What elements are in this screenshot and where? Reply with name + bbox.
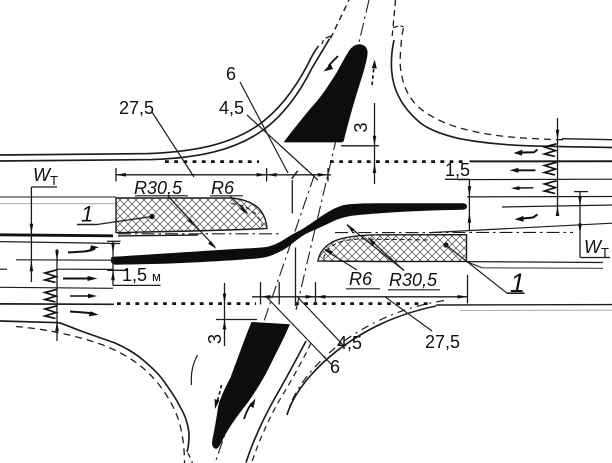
svg-text:R30,5: R30,5: [134, 178, 183, 198]
svg-text:R6: R6: [349, 269, 373, 289]
svg-text:1,5: 1,5: [445, 160, 470, 180]
svg-text:6: 6: [226, 64, 236, 84]
svg-text:R6: R6: [211, 178, 235, 198]
svg-text:R30,5: R30,5: [389, 270, 438, 290]
svg-text:27,5: 27,5: [425, 332, 460, 352]
svg-text:3: 3: [205, 334, 225, 344]
svg-text:4,5: 4,5: [219, 98, 244, 118]
svg-text:27,5: 27,5: [119, 98, 154, 118]
svg-text:6: 6: [330, 357, 340, 377]
svg-text:1: 1: [81, 202, 93, 227]
svg-text:3: 3: [351, 122, 371, 132]
